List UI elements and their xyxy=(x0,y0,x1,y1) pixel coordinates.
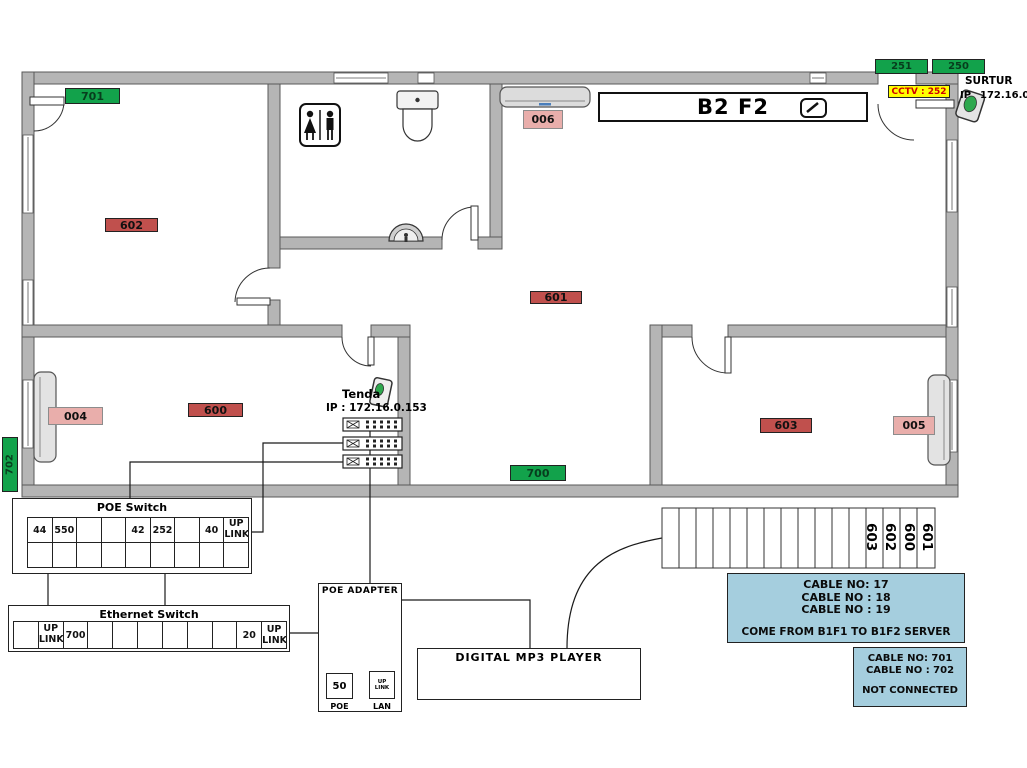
stairs-label-603: 603 xyxy=(863,511,879,563)
port-label-251: 251 xyxy=(875,59,928,74)
poe-port-cell: 252 xyxy=(150,518,175,543)
sink-icon xyxy=(389,224,423,242)
ethernet-port-cell xyxy=(162,622,187,649)
mp3-player-panel: DIGITAL MP3 PLAYER xyxy=(417,648,641,700)
door-leaf xyxy=(471,206,478,240)
poe-adapter-title: POE ADAPTER xyxy=(319,586,401,596)
ethernet-switch-title: Ethernet Switch xyxy=(9,608,289,621)
door-leaf xyxy=(916,100,954,108)
poe-port-cell xyxy=(224,543,249,568)
ethernet-uplink-cell-2: UP LINK xyxy=(262,622,287,649)
room-label-603: 603 xyxy=(760,418,812,433)
ethernet-port-cell xyxy=(14,622,39,649)
room-label-601: 601 xyxy=(530,291,582,304)
room603-left-wall xyxy=(650,325,662,485)
cable-info-box-1: CABLE NO: 17 CABLE NO : 18 CABLE NO : 19… xyxy=(727,573,965,643)
ethernet-port-cell: 20 xyxy=(237,622,262,649)
tenda-switch-icons xyxy=(343,418,402,468)
surtur-ip-label: IP xyxy=(960,90,971,101)
room-label-701: 701 xyxy=(65,88,120,104)
room-label-006: 006 xyxy=(523,110,563,129)
room-label-005: 005 xyxy=(893,416,935,435)
stairs-label-601: 601 xyxy=(919,511,935,563)
door-leaf xyxy=(237,298,270,305)
floor-title: B2 F2 xyxy=(697,95,769,119)
ac-unit-top xyxy=(500,87,590,107)
cable-stairs-to-mp3 xyxy=(567,538,662,648)
poe-port-cell: 550 xyxy=(52,518,77,543)
ethernet-port-cell xyxy=(113,622,138,649)
poe-switch-title: POE Switch xyxy=(13,501,251,514)
cable-footer: NOT CONNECTED xyxy=(862,685,958,697)
poe-port-cell xyxy=(101,543,126,568)
stairs-label-600: 600 xyxy=(901,511,917,563)
room-label-600: 600 xyxy=(188,403,243,417)
poe-port-cell xyxy=(52,543,77,568)
tenda-name: Tenda xyxy=(342,387,380,401)
door-leaf xyxy=(30,97,64,105)
cable-footer: COME FROM B1F1 TO B1F2 SERVER xyxy=(741,626,950,638)
poe-port-cell xyxy=(77,543,102,568)
tenda-ip: IP : 172.16.0.153 xyxy=(326,402,427,414)
bottom-wall xyxy=(22,485,958,497)
door-arc xyxy=(342,337,371,366)
mid-wall-left xyxy=(22,325,342,337)
ethernet-switch-panel: Ethernet Switch UP LINK 700 20 UP LINK xyxy=(8,605,290,652)
ethernet-port-cell xyxy=(88,622,113,649)
poe-adapter-poe-label: POE xyxy=(326,702,353,711)
poe-port-cell xyxy=(126,543,151,568)
poe-uplink-cell: UP LINK xyxy=(224,518,249,543)
mp3-player-title: DIGITAL MP3 PLAYER xyxy=(418,651,640,664)
mid-wall-left2 xyxy=(371,325,410,337)
window xyxy=(418,73,434,83)
room-label-004: 004 xyxy=(48,407,103,425)
cable-adapter-to-mp3 xyxy=(402,600,530,648)
door-leaf xyxy=(368,337,374,365)
room-label-602: 602 xyxy=(105,218,158,232)
edit-icon[interactable] xyxy=(800,98,827,118)
poe-port-cell xyxy=(101,518,126,543)
poe-port-cell: 40 xyxy=(199,518,224,543)
door-arc xyxy=(692,337,728,373)
floor-title-box: B2 F2 xyxy=(598,92,868,122)
stairs-label-602: 602 xyxy=(882,511,898,563)
door-arc xyxy=(235,268,270,302)
door-leaf xyxy=(725,337,731,373)
poe-port-cell xyxy=(199,543,224,568)
ethernet-port-cell: 700 xyxy=(63,622,88,649)
tenda-switch-2 xyxy=(343,437,402,450)
restroom-sign-icon xyxy=(300,104,340,146)
poe-port-cell xyxy=(175,518,200,543)
poe-adapter-lan-label: LAN xyxy=(369,702,395,711)
poe-adapter-poe-port: 50 xyxy=(326,673,353,699)
poe-port-cell xyxy=(28,543,53,568)
poe-switch-ports: 44 550 42 252 40 UP LINK xyxy=(27,517,249,568)
port-label-250: 250 xyxy=(932,59,985,74)
cable-line: CABLE NO: 17 xyxy=(803,579,888,592)
poe-port-cell: 42 xyxy=(126,518,151,543)
surtur-ip: 172.16.0.2 xyxy=(980,90,1027,101)
ethernet-port-cell xyxy=(212,622,237,649)
door-arc xyxy=(878,104,914,140)
cable-line: CABLE NO : 19 xyxy=(801,604,890,617)
floor-plan-page: B2 F2 701 602 006 601 004 600 700 603 00… xyxy=(0,0,1027,768)
poe-switch-panel: POE Switch 44 550 42 252 40 UP LINK xyxy=(12,498,252,574)
ethernet-port-cell xyxy=(138,622,163,649)
poe-adapter-panel: POE ADAPTER 50 POE UP LINK LAN xyxy=(318,583,402,712)
poe-adapter-lan-port: UP LINK xyxy=(369,671,395,699)
toilet-icon xyxy=(397,91,438,141)
room603-top-wall-left xyxy=(662,325,692,337)
cable-line: CABLE NO : 702 xyxy=(866,665,954,677)
tenda-switch-3 xyxy=(343,455,402,468)
room-label-700: 700 xyxy=(510,465,566,481)
toilet-right-wall xyxy=(490,84,502,237)
room603-top-wall-right xyxy=(728,325,946,337)
poe-port-cell xyxy=(150,543,175,568)
cctv-label: CCTV : 252 xyxy=(888,85,950,98)
top-wall xyxy=(22,72,878,84)
tenda-switch-1 xyxy=(343,418,402,431)
ethernet-port-cell xyxy=(187,622,212,649)
toilet-left-wall xyxy=(268,84,280,268)
cable-line: CABLE NO: 701 xyxy=(868,653,953,665)
cable-info-box-2: CABLE NO: 701 CABLE NO : 702 NOT CONNECT… xyxy=(853,647,967,707)
ethernet-switch-ports: UP LINK 700 20 UP LINK xyxy=(13,621,287,649)
toilet-bottom-wall-stub xyxy=(478,237,502,249)
poe-port-cell: 44 xyxy=(28,518,53,543)
ethernet-uplink-cell: UP LINK xyxy=(38,622,63,649)
poe-port-cell xyxy=(77,518,102,543)
surtur-name: SURTUR xyxy=(965,75,1012,87)
walls xyxy=(22,72,958,497)
door-arc xyxy=(442,207,474,240)
poe-port-cell xyxy=(175,543,200,568)
room-label-702: 702 xyxy=(2,437,18,492)
